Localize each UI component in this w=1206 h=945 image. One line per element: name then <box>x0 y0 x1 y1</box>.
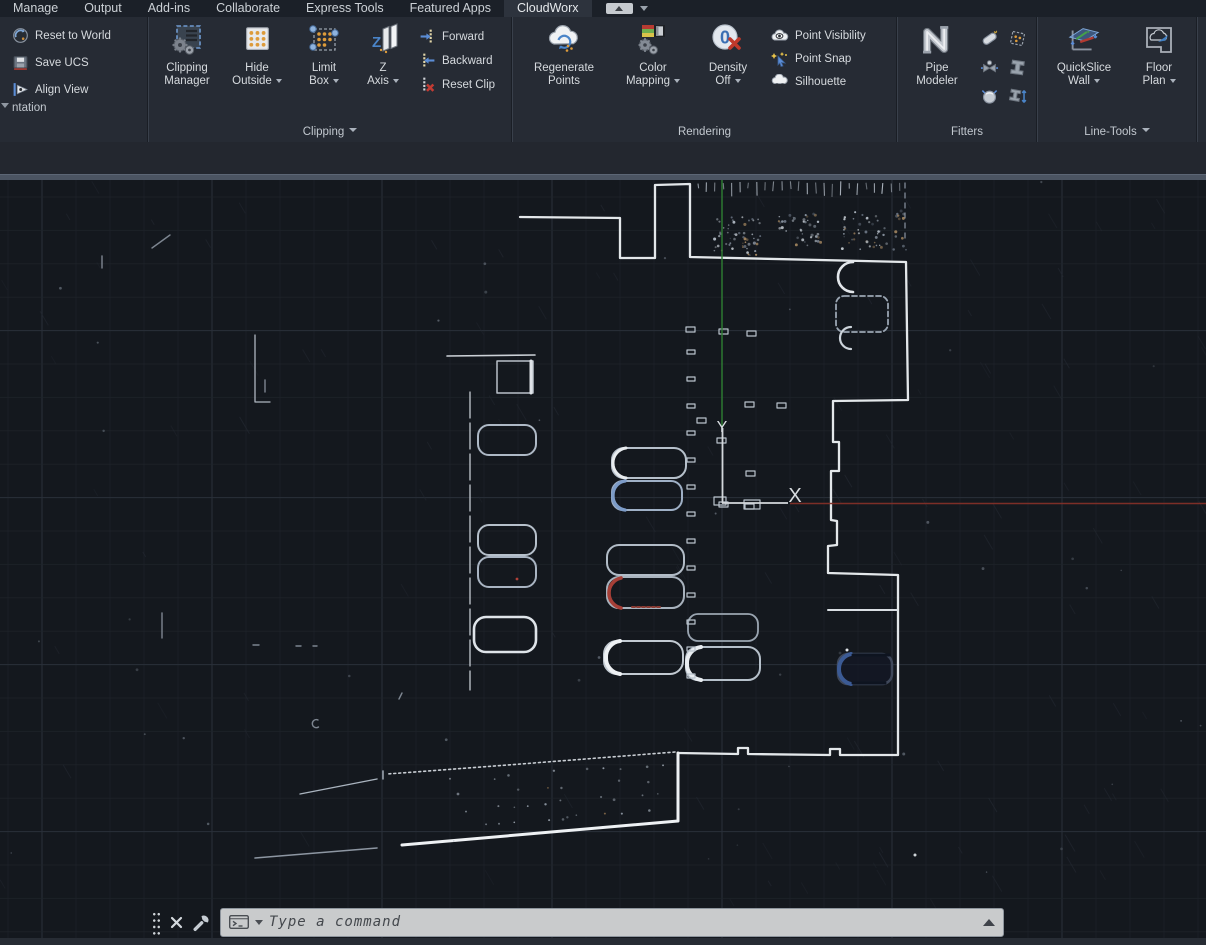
tab-output[interactable]: Output <box>71 0 135 17</box>
point-snap-button[interactable]: Point Snap <box>771 51 866 67</box>
car <box>478 525 536 555</box>
silhouette-button[interactable]: Silhouette <box>771 74 866 90</box>
customize-wrench-icon[interactable] <box>192 913 211 932</box>
panel-clipping-label: Clipping <box>149 122 511 142</box>
silhouette-icon <box>771 74 789 90</box>
ucs-y-label: Y <box>717 419 728 436</box>
floor-plan-icon <box>1141 22 1177 58</box>
car <box>478 557 536 587</box>
pipe-modeler-icon <box>919 20 955 60</box>
align-view-label: Align View <box>35 84 89 96</box>
point-snap-icon <box>771 51 789 67</box>
svg-text:0: 0 <box>720 28 730 48</box>
density-off-icon: 0 <box>710 22 746 58</box>
ramp-wall-3 <box>255 848 377 858</box>
viewport: Y X <box>0 180 1206 945</box>
quickslice-caret-icon[interactable] <box>1094 79 1100 86</box>
clipping-manager-icon <box>170 23 204 57</box>
hide-outside-button[interactable]: Hide Outside <box>223 17 291 88</box>
panel-line-tools: QuickSlice Wall Floor Plan <box>1038 17 1196 142</box>
panel-orientation-label: ntation <box>12 98 147 118</box>
tab-add-ins[interactable]: Add-ins <box>135 0 203 17</box>
reset-clip-label: Reset Clip <box>442 79 495 91</box>
ramp-wall-dotted <box>387 752 675 774</box>
reset-clip-icon <box>419 76 436 93</box>
density-caret-icon[interactable] <box>735 79 741 86</box>
clipping-manager-button[interactable]: Clipping Manager <box>155 17 219 88</box>
regenerate-points-label-2: Points <box>548 75 580 88</box>
ramp-wall-2 <box>300 771 383 794</box>
car <box>607 577 684 608</box>
save-icon <box>12 54 29 71</box>
tab-featured-apps[interactable]: Featured Apps <box>397 0 504 17</box>
floor-plan-caret-icon[interactable] <box>1170 79 1176 86</box>
command-prompt-icon <box>229 915 249 929</box>
pipe-modeler-label-2: Modeler <box>916 75 958 88</box>
cylinder-fitter-button[interactable] <box>976 25 1002 52</box>
hide-outside-label-2: Outside <box>232 75 272 88</box>
car <box>686 647 760 680</box>
car-highlight <box>606 641 620 674</box>
pipe-modeler-button[interactable]: Pipe Modeler <box>902 17 972 88</box>
align-view-icon <box>12 81 29 98</box>
panel-orientation: Reset to World Save UCS <box>0 17 147 142</box>
top-left-wall <box>447 355 535 356</box>
car <box>478 425 536 455</box>
command-history-caret-icon[interactable] <box>255 920 263 929</box>
color-mapping-caret-icon[interactable] <box>674 79 680 86</box>
z-axis-label-2: Axis <box>367 75 389 88</box>
clipping-panel-caret-icon[interactable] <box>349 128 357 136</box>
tab-manage[interactable]: Manage <box>0 0 71 17</box>
floor-plan-label-2: Plan <box>1142 75 1165 88</box>
point-visibility-label: Point Visibility <box>795 30 866 42</box>
backward-button[interactable]: Backward <box>419 52 495 69</box>
close-icon[interactable] <box>170 916 183 929</box>
hide-outside-icon <box>241 24 273 56</box>
point-visibility-button[interactable]: Point Visibility <box>771 28 866 44</box>
hide-outside-caret-icon[interactable] <box>276 79 282 86</box>
z-axis-button[interactable]: Z Z Axis <box>357 17 409 88</box>
limit-box-button[interactable]: Limit Box <box>295 17 353 88</box>
patch-fitter-button[interactable] <box>1004 25 1030 52</box>
car-dark <box>838 654 892 684</box>
hide-outside-label-1: Hide <box>245 62 269 74</box>
floor-plan-label-1: Floor <box>1146 62 1172 74</box>
command-input[interactable]: Type a command <box>220 908 1004 937</box>
panel-clipping: Clipping Manager Hide <box>149 17 511 142</box>
regenerate-points-label-1: Regenerate <box>534 62 594 74</box>
valve-fitter-button[interactable] <box>976 54 1002 81</box>
autocad-cloudworx-window: Manage Output Add-ins Collaborate Expres… <box>0 0 1206 945</box>
forward-label: Forward <box>442 31 484 43</box>
point-visibility-icon <box>771 28 789 44</box>
bottom-strip <box>0 938 1206 945</box>
backward-icon <box>419 52 436 69</box>
car <box>604 641 683 674</box>
color-mapping-button[interactable]: Color Mapping <box>613 17 693 88</box>
car-highlight-red <box>609 578 621 608</box>
clipping-manager-label-2: Manager <box>164 75 209 88</box>
ribbon: Reset to World Save UCS <box>0 17 1206 142</box>
command-expand-arrow-icon[interactable] <box>983 913 995 926</box>
drawing-area-top-band <box>0 142 1206 174</box>
stray-marks <box>102 235 402 728</box>
patch-fitter-icon <box>1008 29 1027 48</box>
color-mapping-icon <box>635 22 671 58</box>
ucs-axes <box>722 428 788 503</box>
car-highlight-blue <box>613 481 625 510</box>
command-bar-drag-handle[interactable] <box>152 910 161 935</box>
ucs-x-label: X <box>788 485 801 507</box>
pipe-modeler-label-1: Pipe <box>925 62 948 74</box>
reset-to-world-button[interactable]: Reset to World <box>12 27 147 44</box>
car-highlight <box>687 647 701 680</box>
car <box>607 545 684 575</box>
limit-box-label-2: Box <box>309 75 329 88</box>
regenerate-points-icon <box>546 22 582 58</box>
density-off-button[interactable]: 0 Density Off <box>697 17 759 88</box>
reset-to-world-label: Reset to World <box>35 30 111 42</box>
car-arc <box>838 262 853 292</box>
point-snap-label: Point Snap <box>795 53 851 65</box>
silhouette-label: Silhouette <box>795 76 846 88</box>
z-axis-caret-icon[interactable] <box>393 79 399 86</box>
backward-label: Backward <box>442 55 493 67</box>
quickslice-wall-label-2: Wall <box>1068 75 1090 88</box>
panel-fitters-label: Fitters <box>898 122 1036 142</box>
quickslice-wall-icon <box>1066 21 1102 59</box>
ribbon-tab-bar: Manage Output Add-ins Collaborate Expres… <box>0 0 1206 17</box>
red-point <box>516 578 519 581</box>
car <box>688 614 758 641</box>
steel-resize-fitter-icon <box>1008 87 1027 106</box>
panel-fitters: Pipe Modeler <box>898 17 1036 142</box>
command-bar: Type a command <box>152 906 1004 938</box>
steel-resize-fitter-button[interactable] <box>1004 83 1030 110</box>
quickslice-wall-button[interactable]: QuickSlice Wall <box>1046 17 1122 88</box>
steel-fitter-button[interactable] <box>1004 54 1030 81</box>
viewport-canvas[interactable]: Y X <box>0 180 1206 945</box>
tab-cloudworx[interactable]: CloudWorx <box>504 0 592 17</box>
panel-line-tools-label: Line-Tools <box>1038 122 1196 142</box>
panel-rendering-label: Rendering <box>513 122 896 142</box>
white-point <box>914 854 917 857</box>
sphere-fitter-button[interactable] <box>976 83 1002 110</box>
limit-box-icon <box>307 23 341 57</box>
align-view-button[interactable]: Align View <box>12 81 147 98</box>
reset-clip-button[interactable]: Reset Clip <box>419 76 495 93</box>
density-off-label-1: Density <box>709 62 747 74</box>
car <box>612 481 682 510</box>
density-off-label-2: Off <box>715 75 730 88</box>
car <box>612 448 686 478</box>
cylinder-fitter-icon <box>980 29 999 48</box>
tab-collaborate[interactable]: Collaborate <box>203 0 293 17</box>
panel-overflow-caret-icon[interactable] <box>1 103 9 112</box>
white-point <box>846 649 849 652</box>
svg-text:Z: Z <box>372 34 381 51</box>
save-ucs-button[interactable]: Save UCS <box>12 54 147 71</box>
ribbon-minimize-button[interactable] <box>606 3 633 14</box>
car <box>836 296 888 332</box>
limit-box-label-1: Limit <box>312 62 336 74</box>
car <box>474 617 536 652</box>
clipping-manager-label-1: Clipping <box>166 62 208 74</box>
save-ucs-label: Save UCS <box>35 57 89 69</box>
panel-rendering: Regenerate Points <box>513 17 896 142</box>
line-tools-panel-caret-icon[interactable] <box>1142 128 1150 136</box>
forward-button[interactable]: Forward <box>419 28 495 45</box>
z-axis-icon: Z <box>366 23 400 57</box>
l-wall <box>255 335 270 402</box>
quickslice-wall-label-1: QuickSlice <box>1057 62 1111 74</box>
panel-stub <box>1198 17 1206 142</box>
sphere-fitter-icon <box>980 87 999 106</box>
top-room <box>497 361 533 393</box>
floor-plan-button[interactable]: Floor Plan <box>1128 17 1190 88</box>
valve-fitter-icon <box>980 58 999 77</box>
z-axis-label-1: Z <box>379 62 386 74</box>
steel-fitter-icon <box>1008 58 1027 77</box>
ribbon-options-caret-icon[interactable] <box>640 6 648 15</box>
regenerate-points-button[interactable]: Regenerate Points <box>519 17 609 88</box>
color-mapping-label-1: Color <box>639 62 666 74</box>
minimize-arrow-icon <box>615 2 623 11</box>
forward-icon <box>419 28 436 45</box>
tab-express-tools[interactable]: Express Tools <box>293 0 397 17</box>
command-placeholder: Type a command <box>269 914 401 930</box>
limit-box-caret-icon[interactable] <box>333 79 339 86</box>
reset-world-icon <box>12 27 29 44</box>
color-mapping-label-2: Mapping <box>626 75 670 88</box>
